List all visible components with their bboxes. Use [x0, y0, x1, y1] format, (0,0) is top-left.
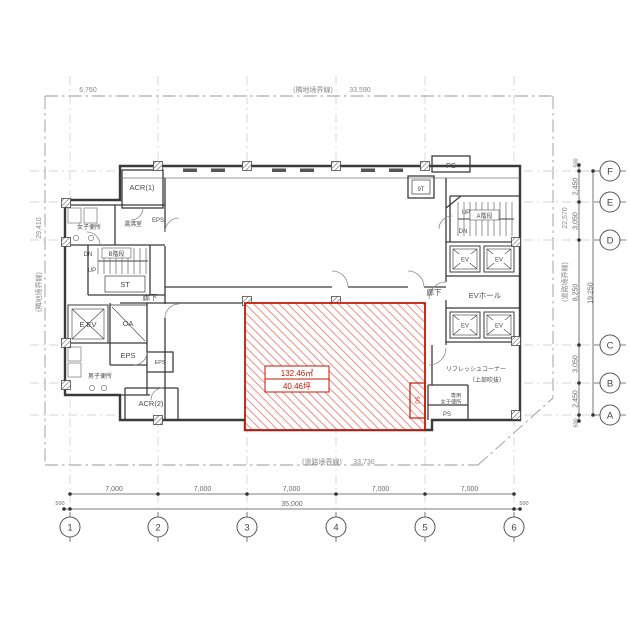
ds-shaft-label: DS: [416, 396, 422, 404]
label-acr1: ACR(1): [129, 183, 155, 192]
svg-text:F: F: [607, 167, 613, 178]
label-ps-bottom: PS: [443, 412, 451, 418]
label-ev-3: EV: [461, 324, 469, 330]
svg-text:A: A: [607, 411, 614, 422]
svg-text:6: 6: [511, 523, 516, 534]
boundary-bottom-value: 33,730: [353, 459, 375, 466]
dim-total-bottom: 35,000: [281, 501, 303, 508]
svg-text:4: 4: [333, 523, 338, 534]
svg-text:3: 3: [244, 523, 249, 534]
tenant-area-label: 132.46㎡ 40.46坪: [265, 366, 329, 392]
dim-total-right: 19,250: [588, 282, 595, 304]
dim-r-2: 3,050: [573, 212, 580, 230]
svg-text:E: E: [607, 198, 613, 209]
label-ev-4: EV: [495, 324, 503, 330]
dim-r-edge-bottom: 500: [574, 418, 580, 427]
label-eps-top: EPS: [152, 218, 164, 224]
label-refresh-corner: リフレッシュコーナー: [446, 366, 506, 373]
dim-span-3: 7,000: [283, 486, 301, 493]
label-mens-wc: 男子便所: [88, 372, 112, 380]
label-womens-wc: 女子便所: [77, 223, 101, 231]
tenant-area-m2: 132.46㎡: [281, 369, 313, 378]
tenant-area-tsubo: 40.46坪: [283, 382, 311, 391]
label-acr2: ACR(2): [138, 399, 164, 408]
svg-text:D: D: [607, 236, 614, 247]
label-ev-1: EV: [461, 258, 469, 264]
dim-r-3: 8,250: [573, 284, 580, 302]
label-oa: OA: [123, 319, 134, 328]
dim-edge-left: 500: [55, 501, 64, 507]
label-corridor-left: 廊下: [143, 292, 158, 302]
svg-text:2: 2: [155, 523, 160, 534]
floor-plan: DS 132.46㎡ 40.46坪 ACR(1) 女子便所 湯沸室 EPS DN…: [0, 0, 630, 630]
label-refresh-note: （上部吹抜）: [469, 376, 505, 384]
svg-text:1: 1: [67, 523, 72, 534]
boundary-left-label: (隣地境界線): [34, 272, 43, 312]
dim-r-5: 2,450: [573, 390, 580, 408]
grid-bubbles-columns: 1 2 3 4 5 6: [60, 512, 524, 542]
svg-text:5: 5: [422, 523, 427, 534]
grid-bubbles-rows: F E D C B A: [594, 161, 626, 425]
label-corridor-right: 廊下: [427, 287, 442, 297]
dim-span-1: 7,000: [105, 486, 123, 493]
boundary-top-value: 33,590: [349, 87, 371, 94]
boundary-right-label: (道路境界線): [560, 262, 569, 302]
label-eps-small: EPS: [155, 360, 166, 366]
label-stair-a: A階段: [476, 212, 492, 220]
label-em-elevator: E.EV: [79, 320, 96, 329]
label-dn-b: DN: [84, 252, 93, 258]
label-kitchenette: 湯沸室: [124, 220, 142, 228]
tenant-area: DS 132.46㎡ 40.46坪: [245, 303, 425, 430]
dim-r-4: 3,050: [573, 355, 580, 373]
dim-offset-top-left: 6,760: [79, 87, 97, 94]
label-st: ST: [120, 280, 130, 289]
label-stair-b: B階段: [108, 250, 124, 258]
label-dn-a: DN: [459, 229, 468, 235]
dimensions-right: 500 2,450 3,050 8,250 3,050 2,450 500 19…: [573, 158, 627, 427]
label-ev-2: EV: [495, 258, 503, 264]
dim-r-edge-top: 500: [574, 158, 580, 167]
dim-r-1: 2,450: [573, 178, 580, 196]
boundary-right-value: 22,570: [562, 207, 569, 229]
svg-text:B: B: [607, 379, 613, 390]
label-exclusive-wc: 女子便所: [441, 398, 462, 406]
label-exclusive: 専用: [451, 391, 461, 399]
label-ev-hall: EVホール: [469, 291, 502, 300]
dim-span-5: 7,000: [461, 486, 479, 493]
label-up-a: UP: [462, 210, 470, 216]
dimensions-bottom: 7,000 7,000 7,000 7,000 7,000 35,000 500…: [55, 486, 528, 542]
svg-text:C: C: [607, 341, 614, 352]
boundary-left-value: 29,410: [36, 217, 43, 239]
dim-edge-right: 500: [519, 501, 528, 507]
dim-span-4: 7,000: [372, 486, 390, 493]
label-up-b: UP: [88, 268, 96, 274]
label-eps-mid: EPS: [120, 351, 135, 360]
boundary-bottom-label: (道路境界線): [302, 457, 342, 466]
boundary-top-label: (隣地境界線): [293, 85, 333, 94]
label-9t: 9T: [417, 187, 424, 193]
label-ps-top: PS: [446, 161, 456, 170]
dim-span-2: 7,000: [194, 486, 212, 493]
